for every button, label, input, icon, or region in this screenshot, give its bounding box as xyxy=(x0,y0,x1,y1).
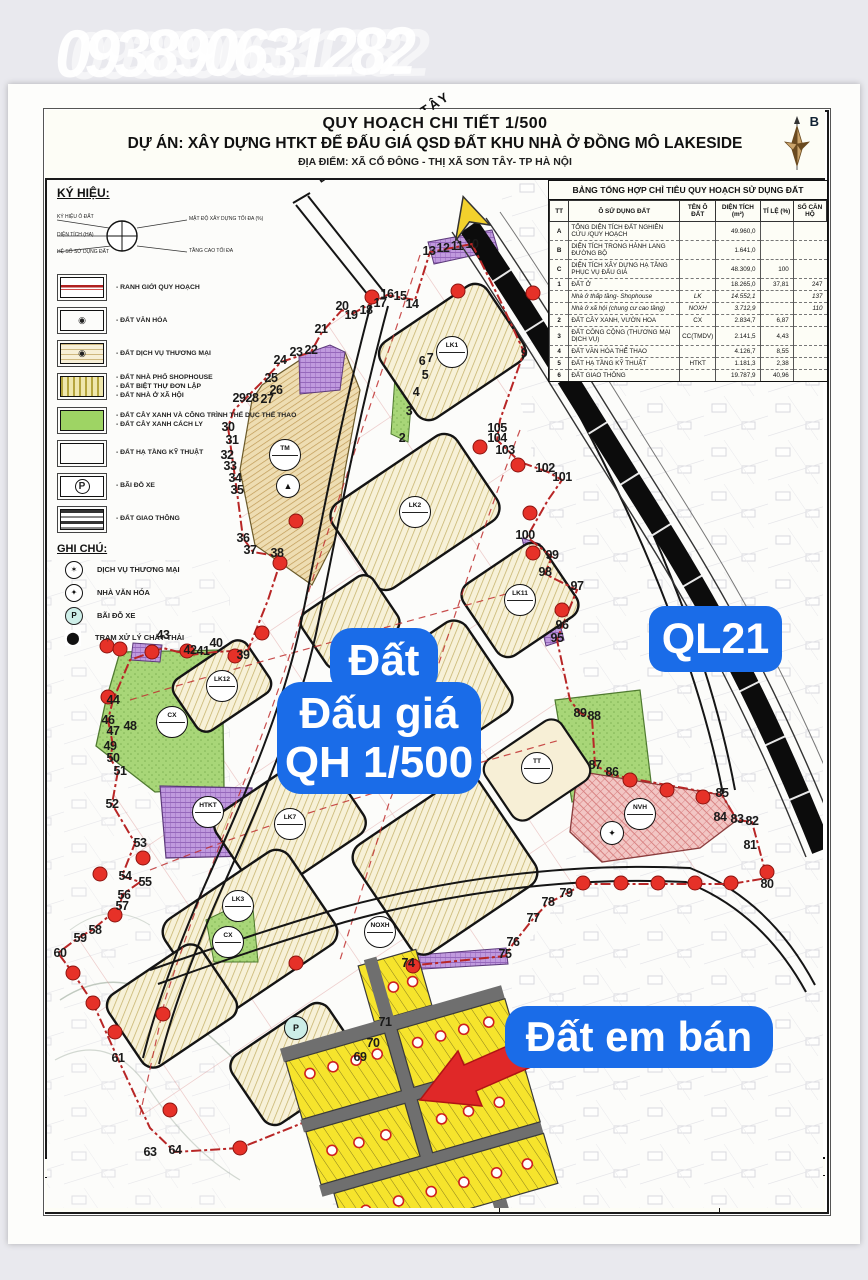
landuse-table: TTÔ SỬ DỤNG ĐẤTTÊN Ô ĐẤTDIỆN TÍCH (m²)TỈ… xyxy=(549,200,827,381)
table-cell-area: 2.141,5 xyxy=(716,327,760,346)
table-cell-name: Nhà ở xã hội (chung cư cao tầng) xyxy=(569,303,680,315)
table-cell-tt xyxy=(550,303,569,315)
legend-note-label: BÃI ĐỖ XE xyxy=(97,611,135,620)
table-cell-code: CX xyxy=(680,315,716,327)
table-cell-code: CC(TMDV) xyxy=(680,327,716,346)
table-cell-pct xyxy=(760,303,793,315)
legend-diagram-label: MẬT ĐỘ XÂY DỰNG TỐI ĐA (%) xyxy=(189,216,263,222)
table-cell-name: ĐẤT CÂY XANH, VƯỜN HOA xyxy=(569,315,680,327)
table-cell-code xyxy=(680,260,716,279)
auction-area-label: Đấu giá QH 1/500 xyxy=(277,682,481,794)
sale-label-text: Đất em bán xyxy=(526,1013,752,1060)
legend-item-label: - RANH GIỚI QUY HOẠCH xyxy=(116,283,200,292)
table-row: Nhà ở xã hội (chung cư cao tầng)NOXH3.71… xyxy=(550,303,827,315)
table-cell-name: ĐẤT HẠ TẦNG KỸ THUẬT xyxy=(569,358,680,370)
table-cell-area: 3.712,9 xyxy=(716,303,760,315)
legend-diagram-label: KÝ HIỆU Ô ĐẤT xyxy=(57,214,94,220)
table-cell-pct xyxy=(760,222,793,241)
table-row: CDIỆN TÍCH XÂY DỰNG HẠ TẦNG PHỤC VỤ ĐẤU … xyxy=(550,260,827,279)
table-cell-pct: 40,96 xyxy=(760,370,793,382)
legend-diagram-label: DIỆN TÍCH (HA) xyxy=(57,232,94,238)
table-cell-units xyxy=(793,327,826,346)
table-cell-name: ĐẤT CÔNG CỘNG (THƯƠNG MẠI DỊCH VỤ) xyxy=(569,327,680,346)
table-cell-area: 19.787,9 xyxy=(716,370,760,382)
legend-note: PBÃI ĐỖ XE xyxy=(57,607,307,625)
table-cell-area: 1.641,0 xyxy=(716,241,760,260)
legend-swatch-housing xyxy=(60,376,104,397)
legend-swatch-green xyxy=(60,410,104,431)
footer-consultant-header: ĐƠN VỊ TƯ VẤN LẬP QUY HOẠCH xyxy=(45,1159,499,1178)
legend-diagram-label: TẦNG CAO TỐI ĐA xyxy=(189,248,233,254)
legend-item: - ĐẤT NHÀ PHỐ SHOPHOUSE- ĐẤT BIỆT THỰ ĐƠ… xyxy=(57,373,307,401)
legend-note-label: TRẠM XỬ LÝ CHẤT THẢI xyxy=(95,633,184,642)
table-cell-tt: 2 xyxy=(550,315,569,327)
table-cell-pct: 2,38 xyxy=(760,358,793,370)
footer-agency-value: TRUNG TÂM PHÁT TRIỂN QUỸ ĐẤT THỊ XÃ SƠN … xyxy=(500,1178,719,1212)
table-row: BDIỆN TÍCH TRONG HÀNH LANG ĐƯỜNG BỘ1.641… xyxy=(550,241,827,260)
legend-item-label: - BÃI ĐỖ XE xyxy=(116,481,155,490)
table-cell-tt: 3 xyxy=(550,327,569,346)
landuse-summary-table: BẢNG TỔNG HỢP CHỈ TIÊU QUY HOẠCH SỬ DỤNG… xyxy=(548,180,828,382)
table-cell-pct xyxy=(760,291,793,303)
highway-label-text: QL21 xyxy=(662,615,770,663)
legend-label-line: - BÃI ĐỖ XE xyxy=(116,481,155,490)
table-cell-pct xyxy=(760,241,793,260)
auction-area-line2: Đấu giá xyxy=(300,689,459,738)
legend-label-line: - ĐẤT GIAO THÔNG xyxy=(116,514,180,523)
table-cell-code: NOXH xyxy=(680,303,716,315)
legend-item: P- BÃI ĐỖ XE xyxy=(57,473,307,500)
footer-drawing-code: KÝ HIỆU BẢN VẼ QH03 xyxy=(720,1159,825,1212)
legend-note: ✦NHÀ VĂN HÓA xyxy=(57,584,307,602)
footer-consultant-value: CÔNG TY CP KIẾN TRÚC VT&T HÀ xyxy=(45,1178,499,1212)
legend-label-line: - ĐẤT BIỆT THỰ ĐƠN LẬP xyxy=(116,382,213,391)
notes-title: GHI CHÚ: xyxy=(57,543,307,555)
legend-title: KÝ HIỆU: xyxy=(57,186,307,200)
legend-note: ⬤TRẠM XỬ LÝ CHẤT THẢI xyxy=(57,630,307,646)
legend-item-label: - ĐẤT VĂN HÓA xyxy=(116,316,167,325)
drawing-title: QUY HOẠCH CHI TIẾT 1/500 xyxy=(45,115,825,133)
table-col-header: TÊN Ô ĐẤT xyxy=(680,201,716,222)
dịch-vụ-thương-mại-icon: ✶ xyxy=(65,561,83,579)
legend-swatch-parking: P xyxy=(60,476,104,497)
legend-item: - RANH GIỚI QUY HOẠCH xyxy=(57,274,307,301)
table-row: 5ĐẤT HẠ TẦNG KỸ THUẬTHTKT1.181,32,38 xyxy=(550,358,827,370)
table-row: 3ĐẤT CÔNG CỘNG (THƯƠNG MẠI DỊCH VỤ)CC(TM… xyxy=(550,327,827,346)
legend-swatch-commerce: ◉ xyxy=(60,343,104,364)
legend-label-line: - ĐẤT CÂY XANH CÁCH LY xyxy=(116,420,296,429)
table-row: ATỔNG DIỆN TÍCH ĐẤT NGHIÊN CỨU /QUY HOẠC… xyxy=(550,222,827,241)
footer-code-header: KÝ HIỆU BẢN VẼ xyxy=(720,1159,825,1176)
table-cell-tt: 4 xyxy=(550,346,569,358)
table-cell-area: 4.126,7 xyxy=(716,346,760,358)
table-cell-units xyxy=(793,370,826,382)
table-cell-name: DIỆN TÍCH XÂY DỰNG HẠ TẦNG PHỤC VỤ ĐẤU G… xyxy=(569,260,680,279)
nhà-văn-hóa-icon: ✦ xyxy=(65,584,83,602)
table-cell-units xyxy=(793,260,826,279)
legend-symbol-diagram: KÝ HIỆU Ô ĐẤT DIỆN TÍCH (HA) HỆ SỐ SỬ DỤ… xyxy=(57,204,307,268)
table-cell-pct: 37,81 xyxy=(760,279,793,291)
table-cell-code xyxy=(680,222,716,241)
table-col-header: Ô SỬ DỤNG ĐẤT xyxy=(569,201,680,222)
table-cell-area: 49.960,0 xyxy=(716,222,760,241)
legend: KÝ HIỆU: KÝ HIỆU Ô ĐẤT DIỆN TÍCH (HA) HỆ… xyxy=(57,186,307,651)
table-cell-pct: 4,43 xyxy=(760,327,793,346)
legend-label-line: - ĐẤT DỊCH VỤ THƯƠNG MẠI xyxy=(116,349,211,358)
table-title: BẢNG TỔNG HỢP CHỈ TIÊU QUY HOẠCH SỬ DỤNG… xyxy=(549,181,827,200)
table-cell-pct: 8,55 xyxy=(760,346,793,358)
table-col-header: SỐ CĂN HỘ xyxy=(793,201,826,222)
legend-swatch-traffic xyxy=(60,509,104,530)
legend-swatch-culture: ◉ xyxy=(60,310,104,331)
auction-area-line1: Đất xyxy=(349,636,420,685)
table-row: Nhà ở thấp tầng- ShophouseLK14.552,1137 xyxy=(550,291,827,303)
legend-diagram-label: HỆ SỐ SỬ DỤNG ĐẤT xyxy=(57,249,109,255)
table-cell-units xyxy=(793,222,826,241)
legend-label-line: - ĐẤT CÂY XANH VÀ CÔNG TRÌNH THỂ DỤC THỂ… xyxy=(116,411,296,420)
trạm-xử-lý-chất-thải-icon: ⬤ xyxy=(65,630,81,646)
table-col-header: TT xyxy=(550,201,569,222)
table-cell-tt: 1 xyxy=(550,279,569,291)
table-row: 6ĐẤT GIAO THÔNG19.787,940,96 xyxy=(550,370,827,382)
table-cell-area: 2.834,7 xyxy=(716,315,760,327)
table-cell-units: 110 xyxy=(793,303,826,315)
table-cell-pct: 6,87 xyxy=(760,315,793,327)
footer-code-value: QH03 xyxy=(720,1176,825,1212)
auction-area-line3: QH 1/500 xyxy=(285,738,473,787)
table-cell-units xyxy=(793,346,826,358)
table-cell-units xyxy=(793,241,826,260)
table-cell-units xyxy=(793,358,826,370)
legend-note-label: DỊCH VỤ THƯƠNG MẠI xyxy=(97,565,180,574)
table-cell-tt xyxy=(550,291,569,303)
title-block: QUY HOẠCH CHI TIẾT 1/500 DỰ ÁN: XÂY DỰNG… xyxy=(45,110,825,180)
legend-item-label: - ĐẤT NHÀ PHỐ SHOPHOUSE- ĐẤT BIỆT THỰ ĐƠ… xyxy=(116,373,213,401)
watermark-phone: 093890631282 xyxy=(55,9,696,93)
table-cell-tt: 5 xyxy=(550,358,569,370)
table-cell-code xyxy=(680,370,716,382)
table-cell-units: 137 xyxy=(793,291,826,303)
table-col-header: DIỆN TÍCH (m²) xyxy=(716,201,760,222)
table-cell-name: ĐẤT VĂN HÓA THỂ THAO xyxy=(569,346,680,358)
legend-swatch-boundary xyxy=(60,277,104,298)
legend-note: ✶DỊCH VỤ THƯƠNG MẠI xyxy=(57,561,307,579)
table-cell-name: ĐẤT Ở xyxy=(569,279,680,291)
table-cell-code: HTKT xyxy=(680,358,716,370)
table-cell-code: LK xyxy=(680,291,716,303)
table-cell-name: TỔNG DIỆN TÍCH ĐẤT NGHIÊN CỨU /QUY HOẠCH xyxy=(569,222,680,241)
table-cell-area: 14.552,1 xyxy=(716,291,760,303)
compass-label: B xyxy=(810,114,819,129)
table-cell-code xyxy=(680,279,716,291)
legend-swatch-infra xyxy=(60,443,104,464)
highway-label: QL21 xyxy=(649,606,782,672)
bãi-đỗ-xe-icon: P xyxy=(65,607,83,625)
legend-label-line: - ĐẤT VĂN HÓA xyxy=(116,316,167,325)
legend-label-line: - ĐẤT NHÀ Ở XÃ HỘI xyxy=(116,391,213,400)
legend-item-label: - ĐẤT DỊCH VỤ THƯƠNG MẠI xyxy=(116,349,211,358)
table-cell-area: 1.181,3 xyxy=(716,358,760,370)
sheet-footer: ĐƠN VỊ TƯ VẤN LẬP QUY HOẠCH CÔNG TY CP K… xyxy=(45,1157,825,1212)
legend-label-line: - ĐẤT HẠ TẦNG KỸ THUẬT xyxy=(116,448,203,457)
footer-consultant: ĐƠN VỊ TƯ VẤN LẬP QUY HOẠCH CÔNG TY CP K… xyxy=(45,1159,500,1212)
footer-agency-header: CƠ QUAN TỔ CHỨC LẬP QUY HOẠCH xyxy=(500,1159,719,1178)
footer-agency: CƠ QUAN TỔ CHỨC LẬP QUY HOẠCH TRUNG TÂM … xyxy=(500,1159,720,1212)
table-cell-name: DIỆN TÍCH TRONG HÀNH LANG ĐƯỜNG BỘ xyxy=(569,241,680,260)
legend-item-label: - ĐẤT GIAO THÔNG xyxy=(116,514,180,523)
sale-label: Đất em bán xyxy=(505,1006,773,1068)
legend-item: ◉- ĐẤT DỊCH VỤ THƯƠNG MẠI xyxy=(57,340,307,367)
table-cell-units xyxy=(793,315,826,327)
table-cell-tt: C xyxy=(550,260,569,279)
legend-item: ◉- ĐẤT VĂN HÓA xyxy=(57,307,307,334)
table-cell-name: ĐẤT GIAO THÔNG xyxy=(569,370,680,382)
legend-note-label: NHÀ VĂN HÓA xyxy=(97,588,150,597)
table-cell-area: 48.309,0 xyxy=(716,260,760,279)
legend-item-label: - ĐẤT CÂY XANH VÀ CÔNG TRÌNH THỂ DỤC THỂ… xyxy=(116,411,296,429)
parking-icon: P xyxy=(75,479,90,494)
table-cell-code xyxy=(680,241,716,260)
legend-item: - ĐẤT GIAO THÔNG xyxy=(57,506,307,533)
project-location: ĐỊA ĐIỂM: XÃ CỔ ĐÔNG - THỊ XÃ SƠN TÂY- T… xyxy=(45,156,825,168)
project-title: DỰ ÁN: XÂY DỰNG HTKT ĐỂ ĐẤU GIÁ QSD ĐẤT … xyxy=(45,135,825,153)
footer-agency-line1: TRUNG TÂM PHÁT TRIỂN QUỸ ĐẤT xyxy=(516,1182,704,1195)
table-cell-area: 18.265,0 xyxy=(716,279,760,291)
table-cell-pct: 100 xyxy=(760,260,793,279)
legend-item: - ĐẤT HẠ TẦNG KỸ THUẬT xyxy=(57,440,307,467)
table-cell-tt: A xyxy=(550,222,569,241)
legend-item-label: - ĐẤT HẠ TẦNG KỸ THUẬT xyxy=(116,448,203,457)
table-row: 2ĐẤT CÂY XANH, VƯỜN HOACX2.834,76,87 xyxy=(550,315,827,327)
legend-item: - ĐẤT CÂY XANH VÀ CÔNG TRÌNH THỂ DỤC THỂ… xyxy=(57,407,307,434)
footer-agency-line2: THỊ XÃ SƠN TÂY xyxy=(565,1195,654,1208)
table-cell-tt: 6 xyxy=(550,370,569,382)
table-cell-tt: B xyxy=(550,241,569,260)
legend-label-line: - ĐẤT NHÀ PHỐ SHOPHOUSE xyxy=(116,373,213,382)
compass-north-icon: B xyxy=(771,112,823,176)
table-row: 1ĐẤT Ở18.265,037,81247 xyxy=(550,279,827,291)
table-cell-code xyxy=(680,346,716,358)
legend-label-line: - RANH GIỚI QUY HOẠCH xyxy=(116,283,200,292)
table-cell-units: 247 xyxy=(793,279,826,291)
table-row: 4ĐẤT VĂN HÓA THỂ THAO4.126,78,55 xyxy=(550,346,827,358)
table-col-header: TỈ LỆ (%) xyxy=(760,201,793,222)
table-cell-name: Nhà ở thấp tầng- Shophouse xyxy=(569,291,680,303)
